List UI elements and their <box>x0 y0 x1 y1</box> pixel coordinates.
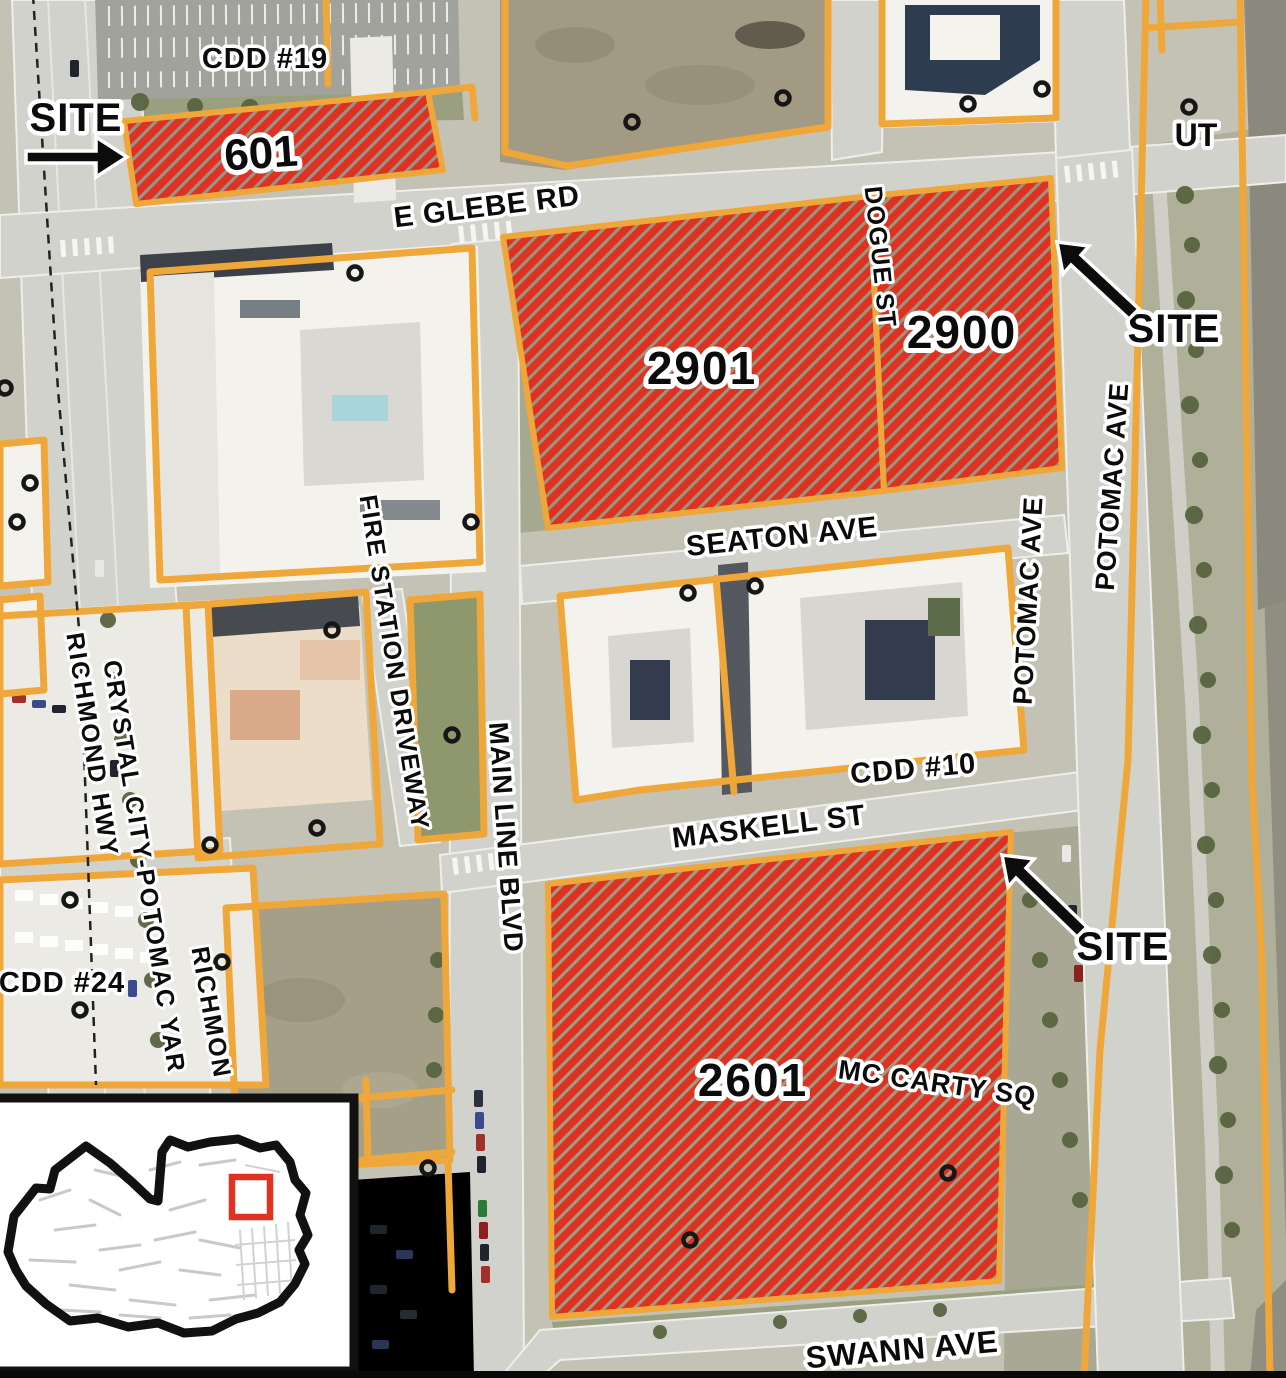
dogue-st-north-road <box>830 0 884 160</box>
parcel-number-2900: 2900 <box>907 306 1017 358</box>
potomac-ave-north-road <box>1052 0 1130 158</box>
bottom-border <box>0 1371 1286 1378</box>
label-cdd-24: CDD #24 <box>0 967 125 999</box>
site-callout-upper-right: SITE <box>1128 307 1221 351</box>
site-callout-mid-right: SITE <box>1077 925 1170 969</box>
parcel-number-2901: 2901 <box>647 342 757 394</box>
pool <box>332 395 388 421</box>
site-callout-top-left: SITE <box>30 96 123 140</box>
parking-lot-bottom <box>352 1172 474 1378</box>
label-cdd-19: CDD #19 <box>202 43 328 75</box>
aerial-parcel-map: CDD #19 SITE 601 E GLEBE RD UT DOGUE ST … <box>0 0 1286 1378</box>
map-canvas: CDD #19 SITE 601 E GLEBE RD UT DOGUE ST … <box>0 0 1286 1378</box>
inset-locator-map <box>0 1098 354 1371</box>
parcel-number-601: 601 <box>223 127 300 181</box>
label-ut: UT <box>1175 117 1218 153</box>
parcel-number-2601: 2601 <box>698 1054 808 1106</box>
